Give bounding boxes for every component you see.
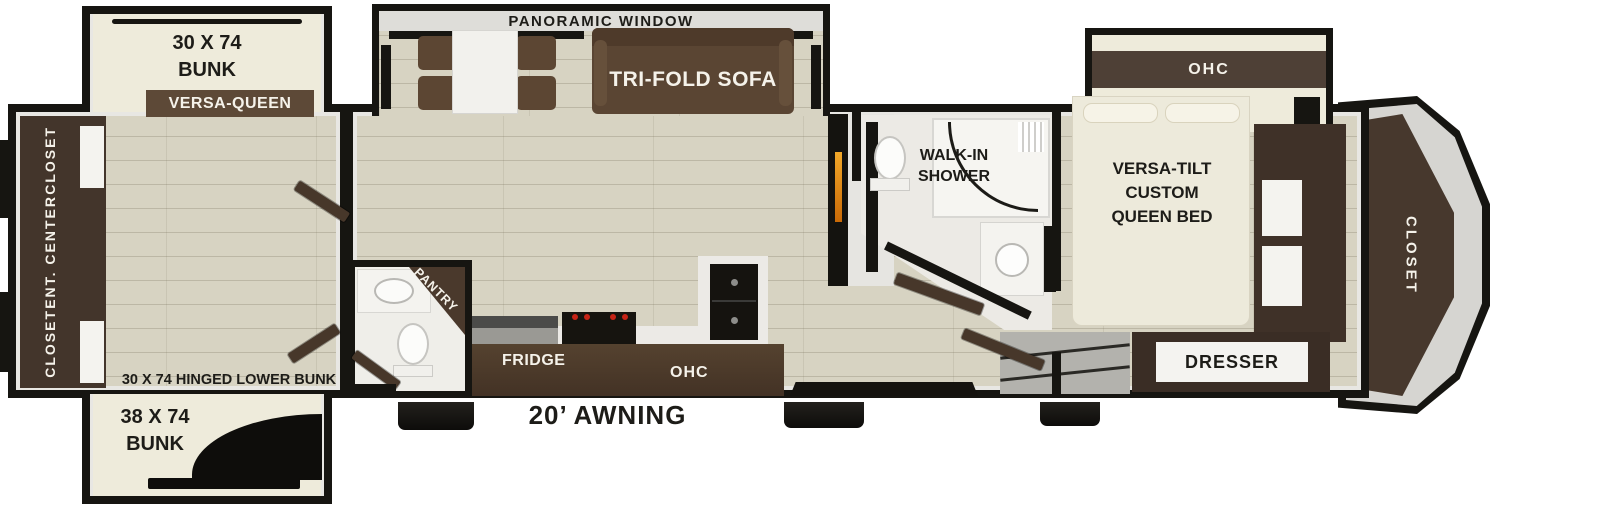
burner-knob: [622, 314, 628, 320]
bathroom-left-wall: [852, 111, 861, 181]
entry-steps: [784, 402, 864, 428]
bathroom-vanity: [980, 222, 1044, 296]
dinette-chair: [516, 76, 556, 110]
island-cabinet: [710, 264, 758, 340]
versa-queen-bar: VERSA-QUEEN: [146, 90, 314, 117]
cabinet-knob: [731, 317, 738, 324]
tri-fold-sofa-text: TRI-FOLD SOFA: [609, 68, 777, 92]
tri-fold-sofa-label: TRI-FOLD SOFA: [592, 58, 794, 102]
half-bath: PANTRY: [348, 260, 472, 398]
lower-bunk-slide: 38 X 74 BUNK: [82, 394, 332, 504]
bunk-headboard-line: [112, 19, 302, 24]
bedroom-steps-platform: [1000, 332, 1130, 394]
bed-text-1: VERSA-TILT: [1113, 157, 1212, 181]
wardrobe-panel: [1262, 246, 1302, 306]
burner-knob: [584, 314, 590, 320]
rear-window-bottom: [0, 292, 10, 372]
toilet: [397, 323, 429, 365]
top-bunk-label: 30 X 74 BUNK: [90, 30, 324, 84]
bedroom-ohc-bar: OHC: [1092, 51, 1326, 88]
walk-in-text-1: WALK-IN: [920, 146, 988, 167]
bed-text-3: QUEEN BED: [1111, 205, 1212, 229]
rear-ent-center-label: ENT. CENTER: [42, 195, 58, 309]
hinged-lower-bunk-label: 30 X 74 HINGED LOWER BUNK: [100, 370, 358, 390]
burner-knob: [572, 314, 578, 320]
rear-closet-top-label: CLOSET: [42, 126, 58, 195]
shower-head-unit: [1018, 122, 1044, 152]
cabinet-divider: [712, 300, 756, 302]
rear-closet-bottom-label: CLOSET: [42, 309, 58, 378]
rv-floor-plan: CLOSET 30 X 74 BUNK VERSA-QUEEN CLOSET E…: [0, 0, 1600, 519]
dresser: DRESSER: [1132, 332, 1330, 392]
wardrobe-panel: [1262, 180, 1302, 236]
rear-window-top: [0, 140, 10, 218]
toilet-tank: [393, 365, 433, 377]
bed-text-2: CUSTOM: [1125, 181, 1198, 205]
awning-label: 20’ AWNING: [505, 398, 710, 432]
pillow: [1083, 103, 1158, 123]
awning-text: 20’ AWNING: [529, 400, 687, 431]
queen-bed-label: VERSA-TILT CUSTOM QUEEN BED: [1073, 157, 1251, 228]
entry-threshold-side: [352, 384, 396, 396]
entry-steps: [398, 402, 474, 430]
versa-queen-label: VERSA-QUEEN: [169, 95, 292, 113]
stove: [562, 312, 636, 344]
dinette-table: [452, 30, 518, 114]
fridge-label: FRIDGE: [502, 352, 565, 370]
sink: [374, 278, 414, 304]
fireplace: [828, 114, 848, 286]
step-edge: [1000, 365, 1130, 382]
bedroom-ohc-label: OHC: [1188, 61, 1230, 79]
burner-knob: [610, 314, 616, 320]
bathroom-window: [1044, 226, 1056, 292]
panoramic-window-label: PANORAMIC WINDOW: [508, 13, 693, 30]
bedroom-door-wall-stub: [1052, 352, 1061, 398]
lower-bunk-label: 38 X 74 BUNK: [96, 404, 214, 458]
hinged-lower-bunk-text: 30 X 74 HINGED LOWER BUNK: [122, 372, 336, 388]
pillow: [1165, 103, 1240, 123]
dinette-chair: [516, 36, 556, 70]
front-closet-label: CLOSET: [1403, 216, 1420, 295]
tri-fold-sofa: TRI-FOLD SOFA: [592, 28, 794, 114]
walk-in-text-2: SHOWER: [918, 167, 990, 188]
bedroom-wardrobe: [1254, 124, 1346, 342]
fireplace-flame: [835, 152, 842, 222]
lower-bunk-word: BUNK: [126, 431, 184, 458]
dresser-label: DRESSER: [1185, 352, 1279, 373]
walk-in-shower-label: WALK-IN SHOWER: [888, 146, 1020, 188]
top-bunk-word: BUNK: [178, 57, 236, 84]
rear-wall-labels: CLOSET ENT. CENTER CLOSET: [20, 116, 80, 388]
kitchen-base-cabinet: FRIDGE OHC: [434, 344, 784, 396]
rear-wall-unit: CLOSET ENT. CENTER CLOSET: [20, 116, 106, 388]
rear-unit-door-top: [80, 126, 104, 188]
bathroom-sink: [995, 243, 1029, 277]
sofa-backrest: [592, 28, 794, 46]
living-slide-window-right: [811, 45, 821, 109]
entry-steps: [1040, 402, 1100, 426]
living-slide-window-left: [381, 45, 391, 109]
hinged-bunk-base: [148, 478, 300, 489]
entry-threshold-main: [790, 382, 978, 396]
cabinet-knob: [731, 279, 738, 286]
lower-bunk-size: 38 X 74: [121, 404, 190, 431]
dresser-label-plate: DRESSER: [1156, 342, 1308, 382]
top-bunk-size: 30 X 74: [173, 30, 242, 57]
kitchen-ohc-label: OHC: [670, 364, 709, 382]
queen-bed: VERSA-TILT CUSTOM QUEEN BED: [1072, 96, 1250, 326]
